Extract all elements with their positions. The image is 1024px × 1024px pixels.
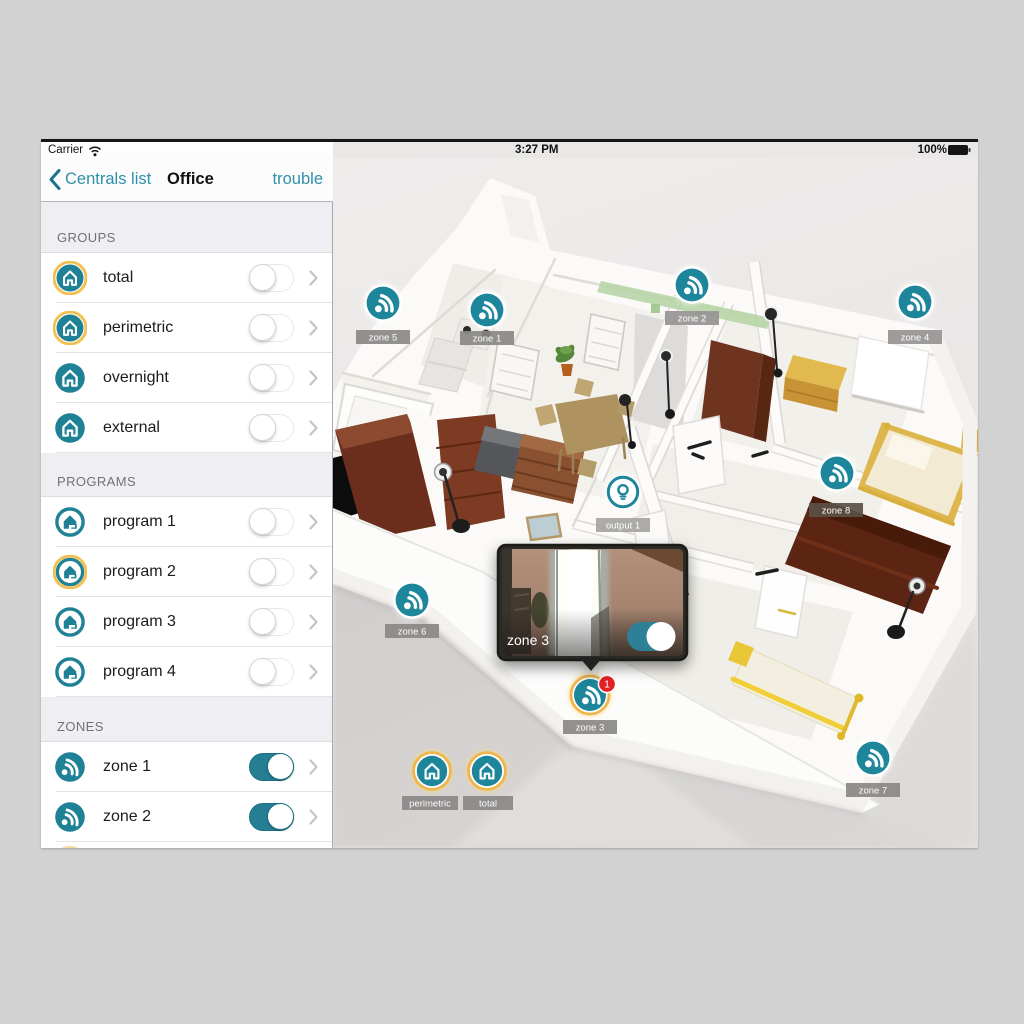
svg-text:zone 3: zone 3 — [576, 723, 605, 734]
svg-text:zone 3: zone 3 — [507, 632, 549, 648]
svg-text:zone 2: zone 2 — [678, 314, 707, 325]
svg-text:zone 5: zone 5 — [369, 333, 398, 344]
svg-text:zone 4: zone 4 — [901, 333, 930, 344]
svg-text:total: total — [479, 799, 497, 810]
svg-text:output 1: output 1 — [606, 521, 640, 532]
svg-text:zone 8: zone 8 — [822, 506, 851, 517]
svg-text:perimetric: perimetric — [409, 799, 451, 810]
svg-text:zone 1: zone 1 — [473, 334, 502, 345]
svg-text:1: 1 — [604, 679, 610, 691]
svg-text:zone 6: zone 6 — [398, 627, 427, 638]
svg-text:zone 7: zone 7 — [859, 786, 888, 797]
